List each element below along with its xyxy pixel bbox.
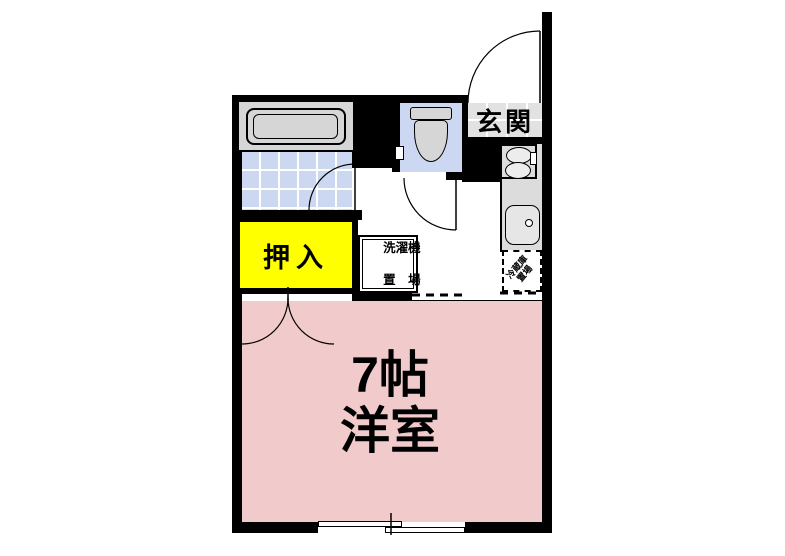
kitchen-sink (505, 205, 540, 245)
closet-label: 押入 (263, 236, 329, 275)
window-pane-right (385, 527, 465, 533)
bathtub (237, 100, 355, 152)
bathtub-inner (253, 114, 338, 139)
entrance-genkan: 玄関 (468, 103, 542, 137)
entrance-label: 玄関 (476, 102, 534, 139)
sink-drain (525, 219, 533, 227)
toilet-paper-holder (395, 146, 404, 160)
washing-machine-area: 洗濯機 置 場 (358, 235, 418, 293)
open-passage-dashes (412, 293, 542, 301)
room-type-label: 洋室 (340, 403, 440, 459)
floor-plan: 玄関 押入 洗濯機 置 場 冷蔵庫 置場 7帖 (0, 0, 785, 556)
toilet-tank (410, 107, 452, 120)
wall-left (232, 95, 242, 533)
refrigerator-label: 冷蔵庫 置場 (506, 254, 539, 287)
bathroom-floor (242, 152, 352, 210)
wall-toilet-left (392, 95, 400, 172)
stove-burner-bottom (505, 162, 531, 179)
stove-knob (530, 152, 537, 165)
laundry-label-line1: 洗濯機 (383, 241, 421, 255)
room-size-label: 7帖 (351, 347, 429, 403)
washing-machine-inner: 洗濯機 置 場 (362, 239, 414, 289)
wall-genkan-side (468, 137, 500, 182)
refrigerator-area: 冷蔵庫 置場 (502, 250, 542, 292)
closet-oshiire: 押入 (240, 222, 352, 288)
laundry-label-line2: 置 場 (383, 273, 421, 287)
room-label: 7帖 洋室 (280, 338, 500, 468)
entrance-door-icon (468, 31, 540, 103)
wall-right (542, 12, 552, 533)
toilet-door-icon (404, 178, 456, 230)
